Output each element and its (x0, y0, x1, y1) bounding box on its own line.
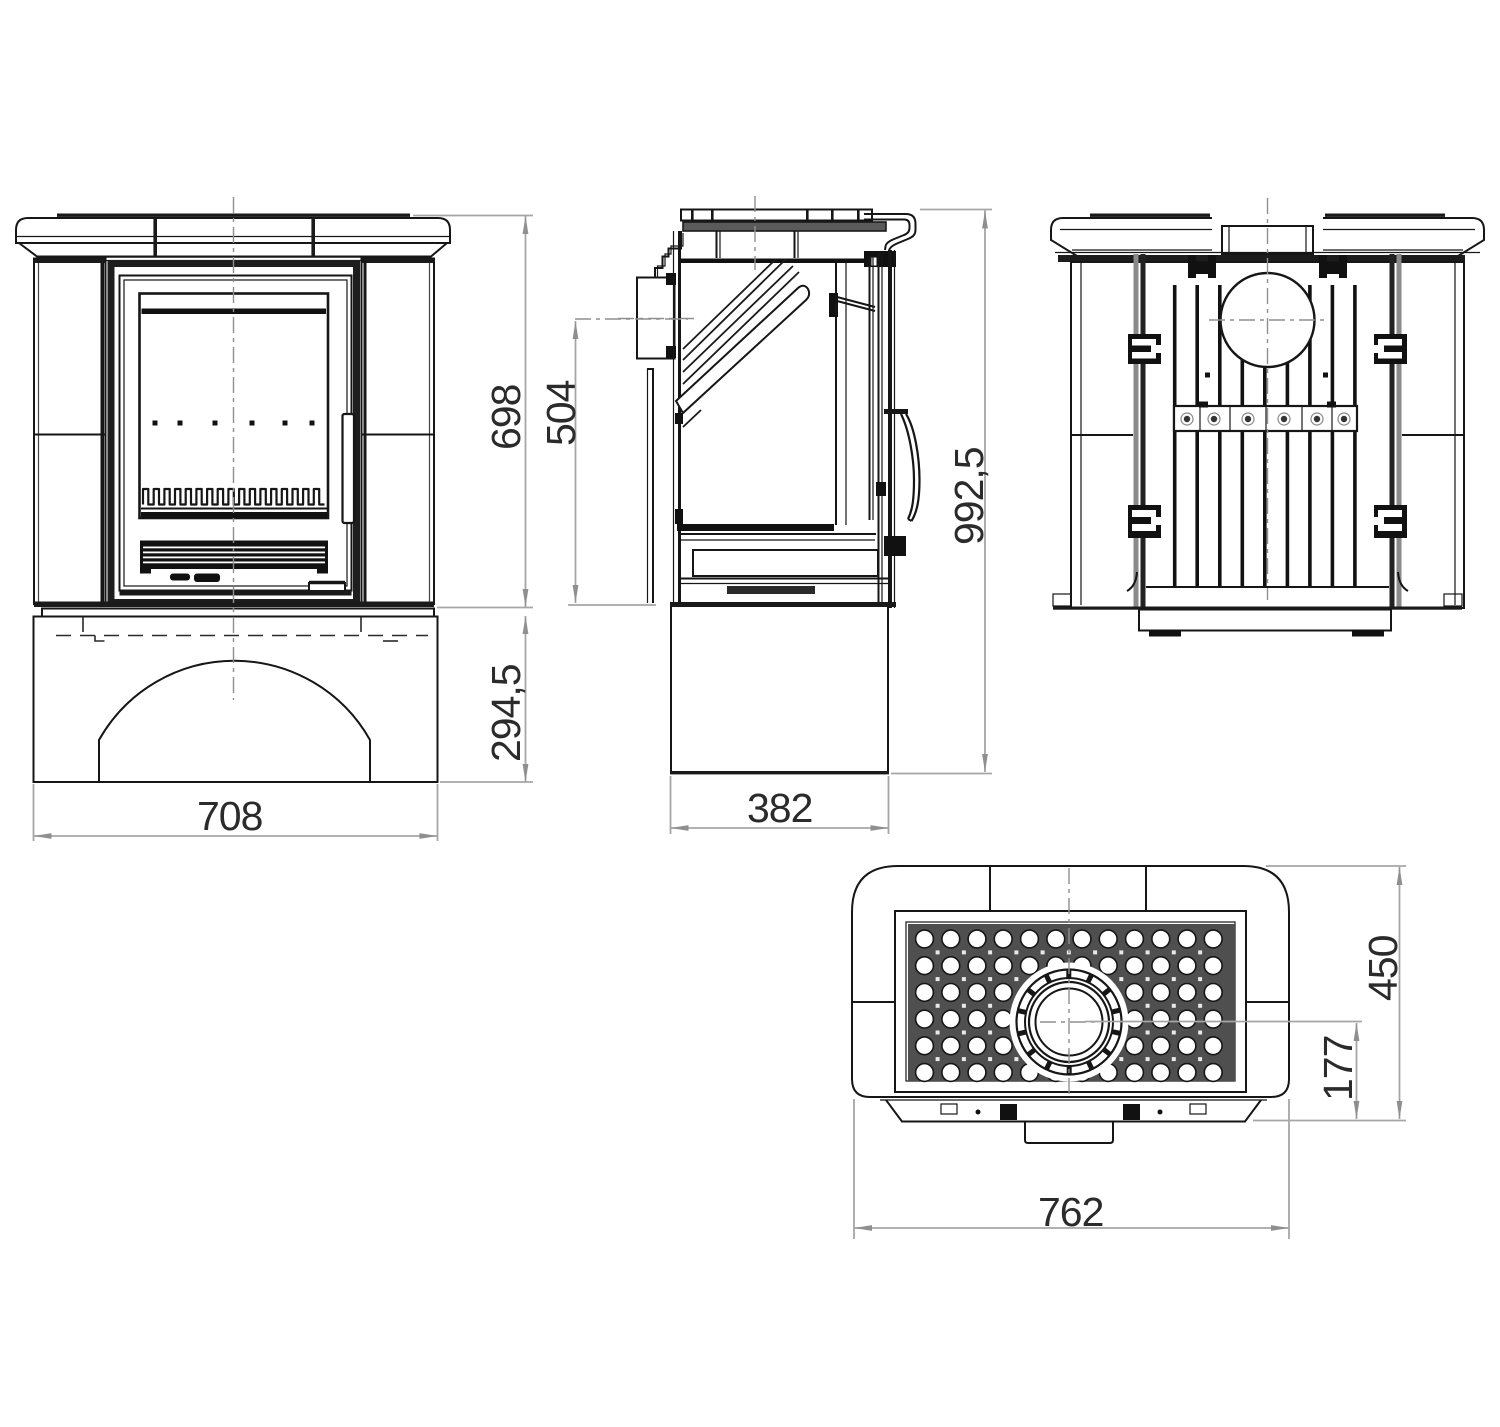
svg-text:698: 698 (483, 384, 529, 450)
svg-text:450: 450 (1360, 935, 1406, 1001)
svg-text:992,5: 992,5 (946, 447, 992, 545)
svg-text:177: 177 (1315, 1036, 1361, 1101)
svg-text:762: 762 (1038, 1189, 1103, 1235)
svg-text:382: 382 (747, 785, 812, 831)
svg-text:504: 504 (538, 380, 584, 446)
svg-text:708: 708 (197, 793, 263, 839)
svg-text:294,5: 294,5 (483, 664, 529, 762)
